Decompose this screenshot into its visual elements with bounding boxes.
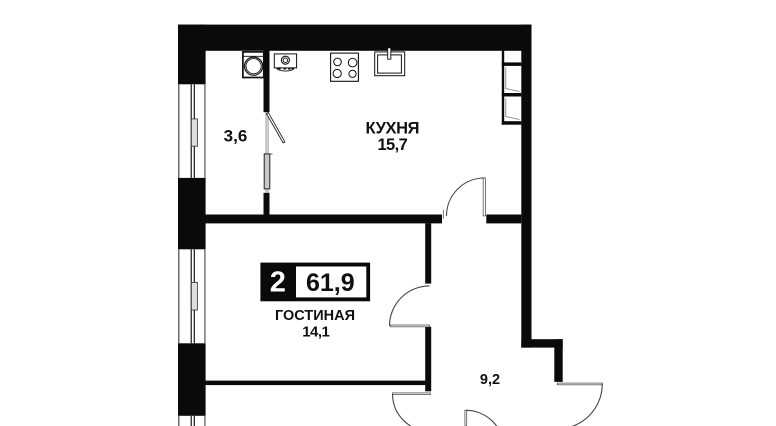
svg-text:3,6: 3,6	[224, 127, 248, 146]
svg-text:14,1: 14,1	[302, 324, 329, 341]
svg-text:15,7: 15,7	[377, 136, 407, 154]
svg-text:КУХНЯ: КУХНЯ	[366, 119, 420, 137]
svg-text:9,2: 9,2	[480, 372, 500, 388]
svg-text:61,9: 61,9	[306, 269, 355, 297]
svg-text:2: 2	[270, 267, 286, 299]
svg-text:ГОСТИНАЯ: ГОСТИНАЯ	[275, 308, 355, 324]
